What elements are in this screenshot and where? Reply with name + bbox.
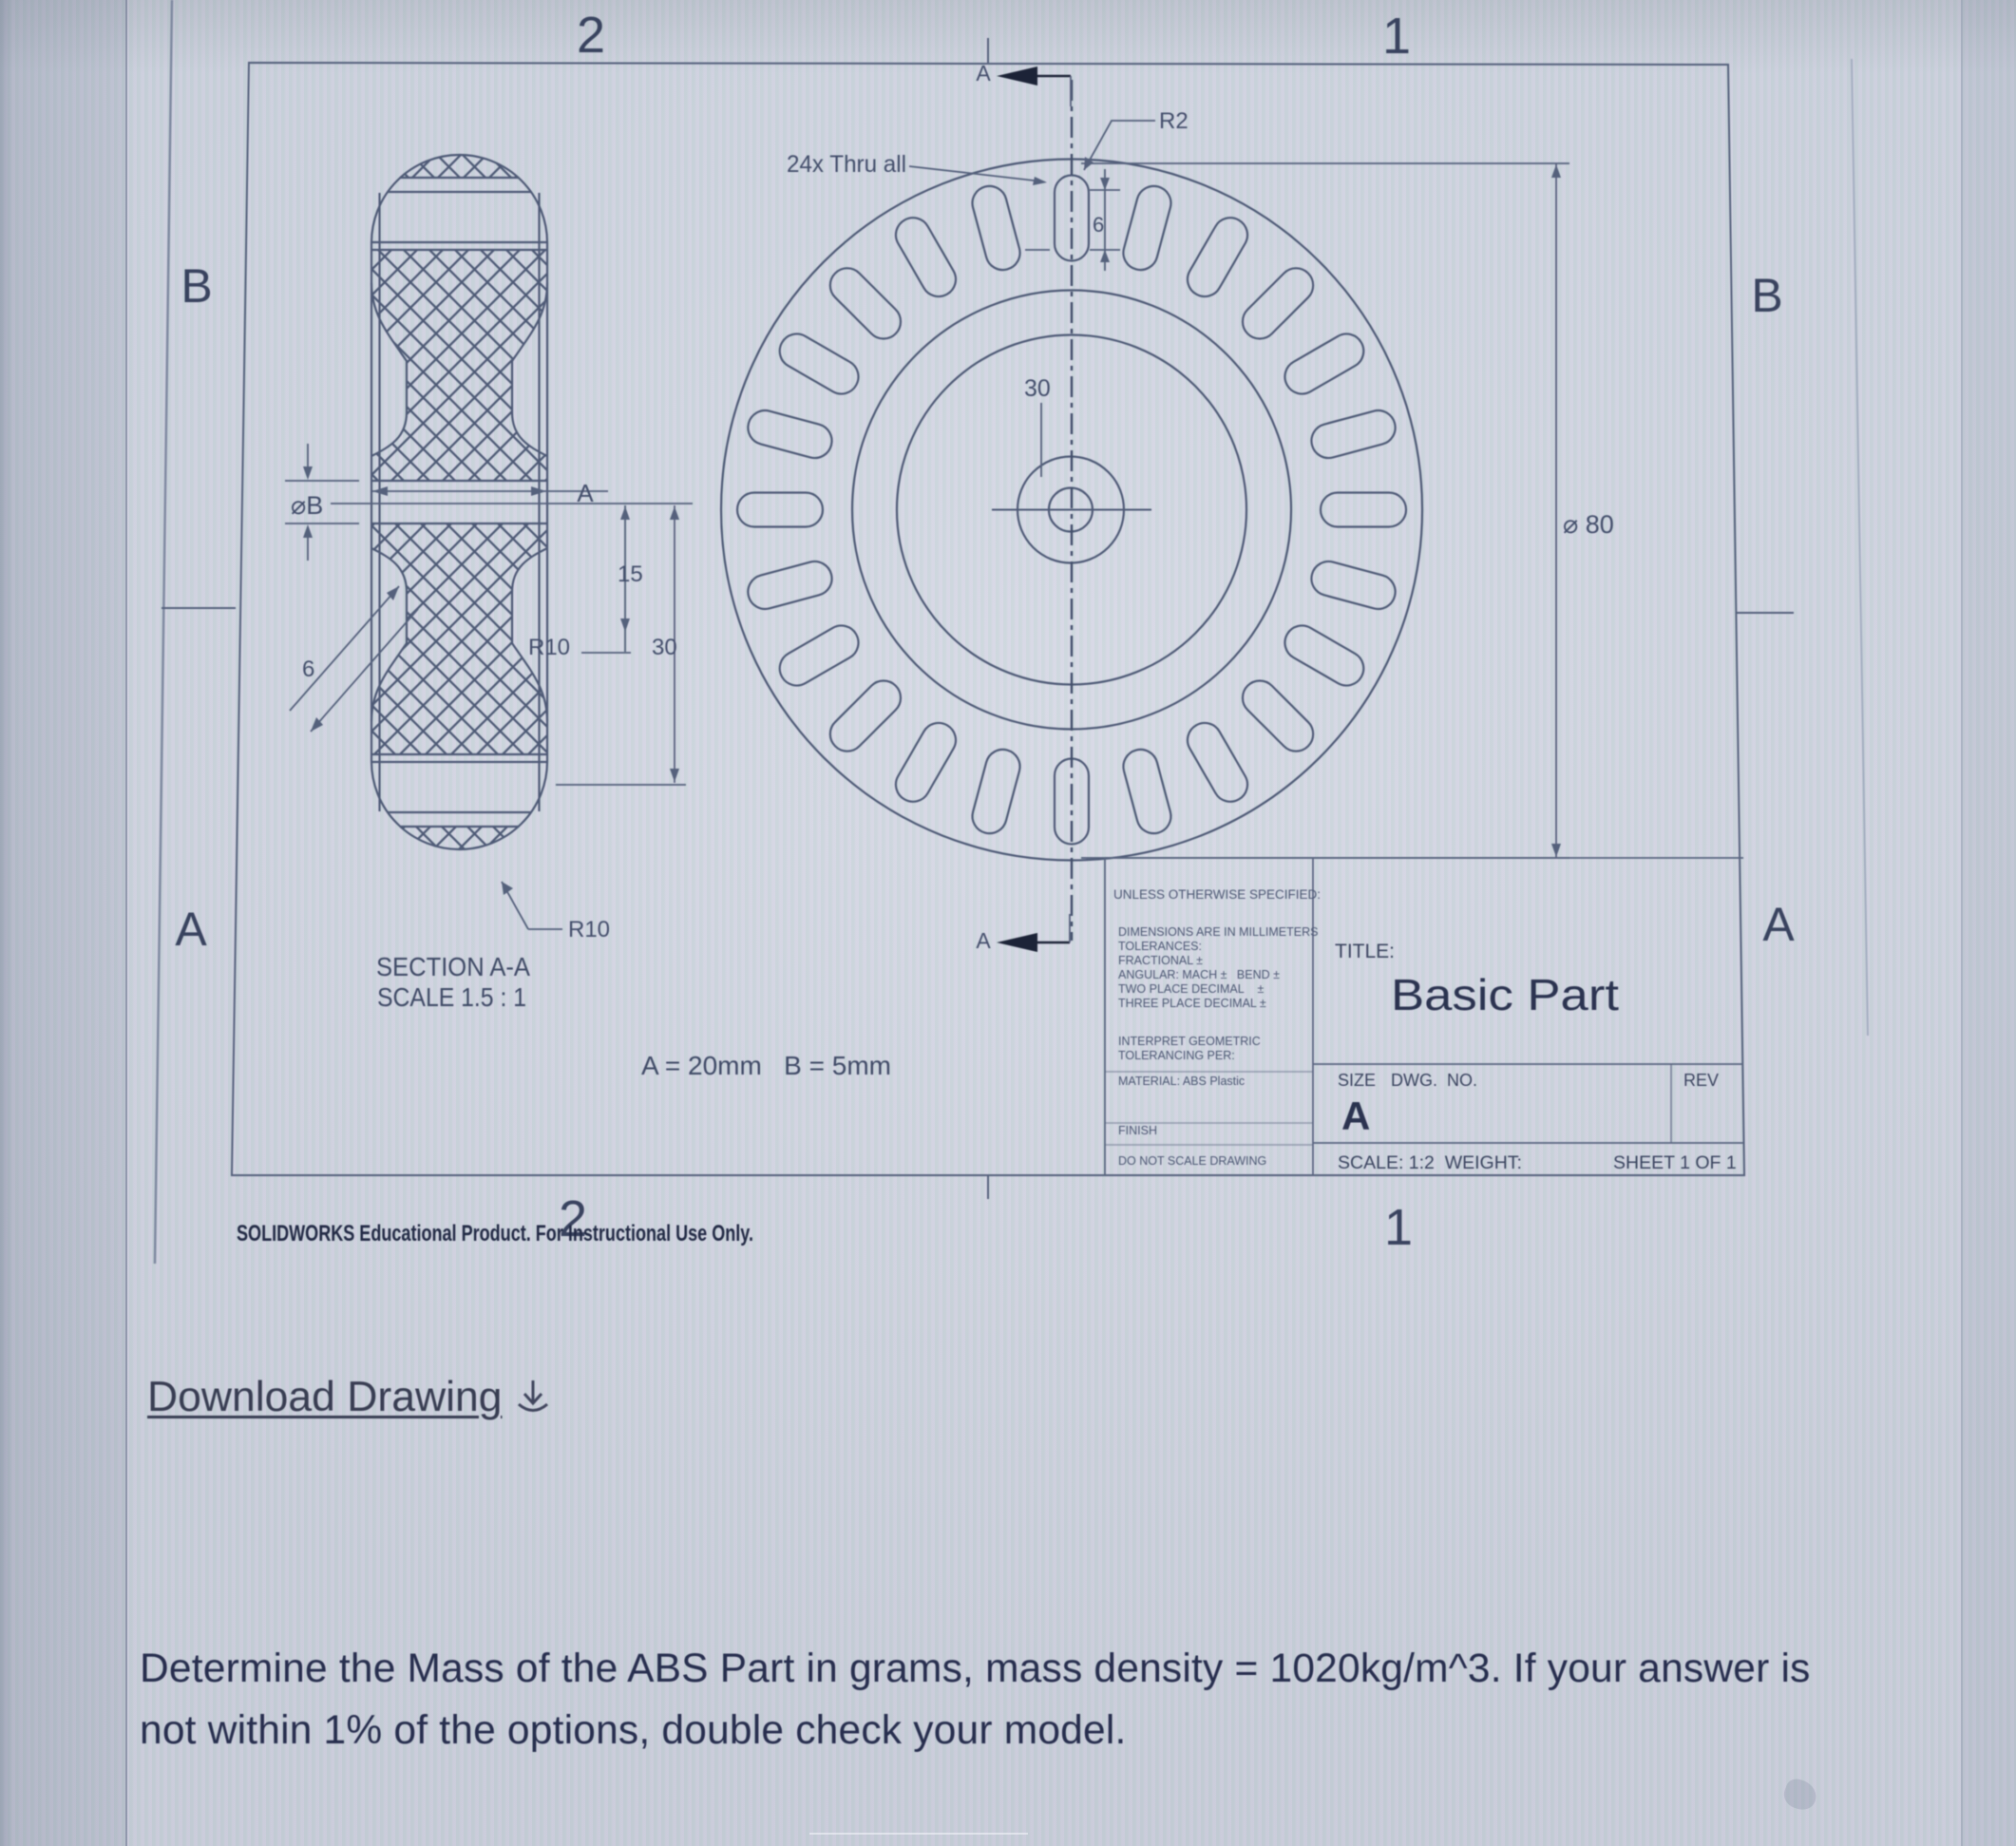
svg-text:1: 1 <box>1382 8 1411 65</box>
svg-text:UNLESS OTHERWISE SPECIFIED:: UNLESS OTHERWISE SPECIFIED: <box>1113 887 1321 902</box>
svg-text:SOLIDWORKS Educational Product: SOLIDWORKS Educational Product. For Inst… <box>237 1221 753 1247</box>
svg-text:DIMENSIONS ARE IN MILLIMETERS: DIMENSIONS ARE IN MILLIMETERS <box>1118 925 1318 939</box>
svg-text:A: A <box>1762 898 1795 951</box>
svg-text:SIZE: SIZE <box>1338 1071 1376 1090</box>
svg-text:TWO PLACE DECIMAL ±: TWO PLACE DECIMAL ± <box>1118 982 1265 996</box>
svg-text:SHEET 1 OF 1: SHEET 1 OF 1 <box>1613 1152 1737 1173</box>
svg-text:24x Thru all: 24x Thru all <box>787 151 906 178</box>
svg-text:DWG. NO.: DWG. NO. <box>1391 1071 1477 1090</box>
svg-text:THREE PLACE DECIMAL ±: THREE PLACE DECIMAL ± <box>1118 997 1266 1010</box>
svg-text:A: A <box>976 928 991 953</box>
svg-text:REV: REV <box>1683 1071 1719 1090</box>
svg-text:TITLE:: TITLE: <box>1335 941 1395 962</box>
svg-text:B: B <box>181 259 212 313</box>
svg-text:A: A <box>175 903 207 956</box>
svg-text:A = 20mm B = 5mm: A = 20mm B = 5mm <box>641 1051 891 1080</box>
svg-text:DO NOT SCALE DRAWING: DO NOT SCALE DRAWING <box>1118 1154 1266 1168</box>
svg-text:INTERPRET GEOMETRIC: INTERPRET GEOMETRIC <box>1118 1035 1261 1048</box>
svg-text:SECTION A-A: SECTION A-A <box>376 952 530 981</box>
svg-text:SCALE 1.5 : 1: SCALE 1.5 : 1 <box>377 982 526 1012</box>
svg-text:2: 2 <box>577 7 605 64</box>
svg-text:ANGULAR: MACH ± BEND ±: ANGULAR: MACH ± BEND ± <box>1118 968 1280 981</box>
svg-text:R10: R10 <box>568 917 610 942</box>
svg-text:TOLERANCING PER:: TOLERANCING PER: <box>1118 1049 1235 1062</box>
svg-text:A: A <box>976 61 991 86</box>
svg-text:FRACTIONAL ±: FRACTIONAL ± <box>1118 954 1203 967</box>
svg-text:30: 30 <box>1024 375 1051 402</box>
svg-text:1: 1 <box>1384 1199 1413 1256</box>
svg-text:B: B <box>1751 269 1782 322</box>
svg-text:15: 15 <box>618 561 643 587</box>
svg-text:⌀B: ⌀B <box>291 491 323 520</box>
svg-text:R10: R10 <box>528 635 570 660</box>
svg-text:A: A <box>577 479 594 507</box>
svg-text:FINISH: FINISH <box>1118 1124 1157 1137</box>
svg-text:6: 6 <box>1093 213 1104 237</box>
svg-text:TOLERANCES:: TOLERANCES: <box>1118 940 1202 953</box>
svg-text:30: 30 <box>652 635 677 660</box>
svg-text:Basic Part: Basic Part <box>1391 970 1619 1019</box>
svg-text:6: 6 <box>302 657 314 682</box>
svg-text:R2: R2 <box>1159 108 1189 134</box>
svg-text:A: A <box>1341 1094 1370 1138</box>
svg-text:⌀ 80: ⌀ 80 <box>1563 510 1614 539</box>
svg-text:MATERIAL: ABS Plastic: MATERIAL: ABS Plastic <box>1118 1075 1245 1088</box>
svg-text:SCALE: 1:2 WEIGHT:: SCALE: 1:2 WEIGHT: <box>1338 1152 1522 1173</box>
